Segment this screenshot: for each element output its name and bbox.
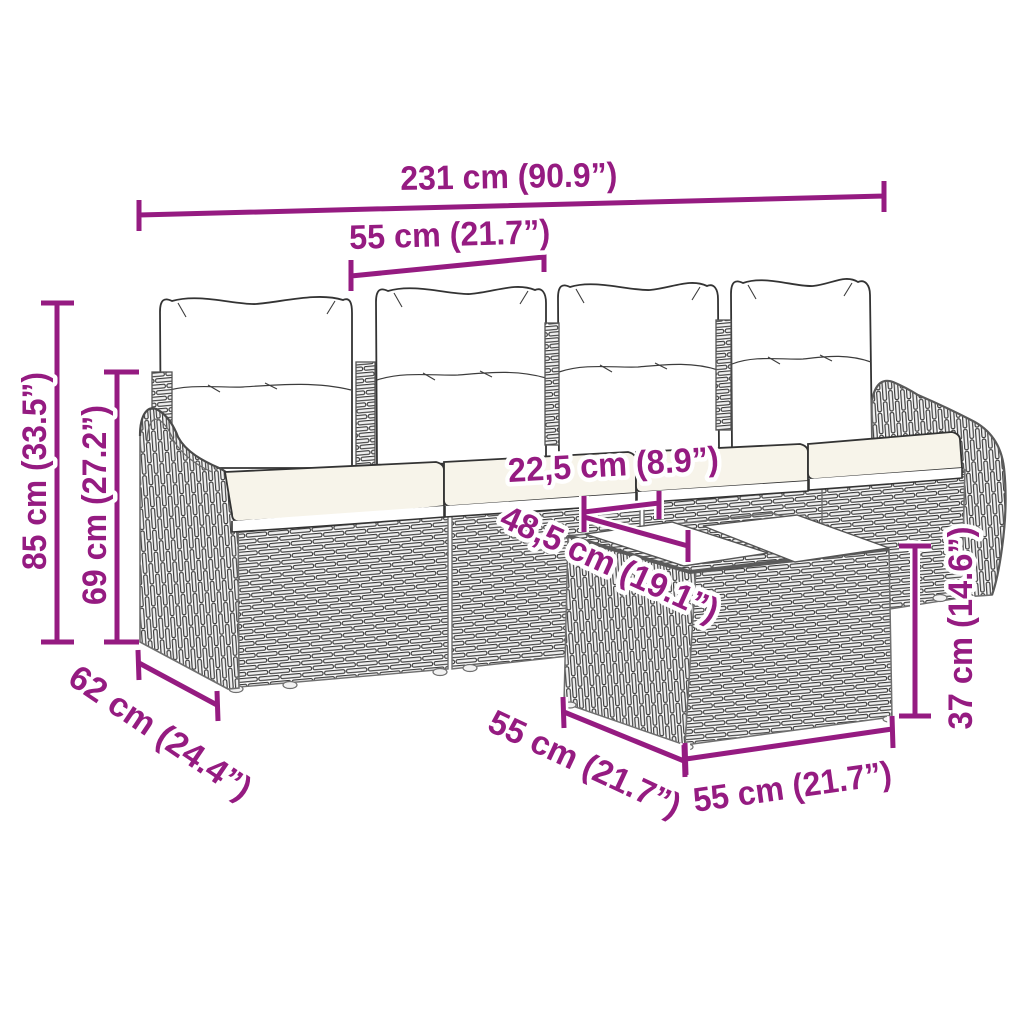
svg-text:69 cm (27.2”): 69 cm (27.2”): [76, 405, 114, 605]
svg-text:231 cm (90.9”): 231 cm (90.9”): [400, 156, 618, 198]
svg-text:85 cm (33.5”): 85 cm (33.5”): [16, 372, 54, 570]
svg-text:37 cm (14.6”): 37 cm (14.6”): [942, 527, 980, 730]
svg-text:55 cm (21.7”): 55 cm (21.7”): [349, 213, 551, 257]
